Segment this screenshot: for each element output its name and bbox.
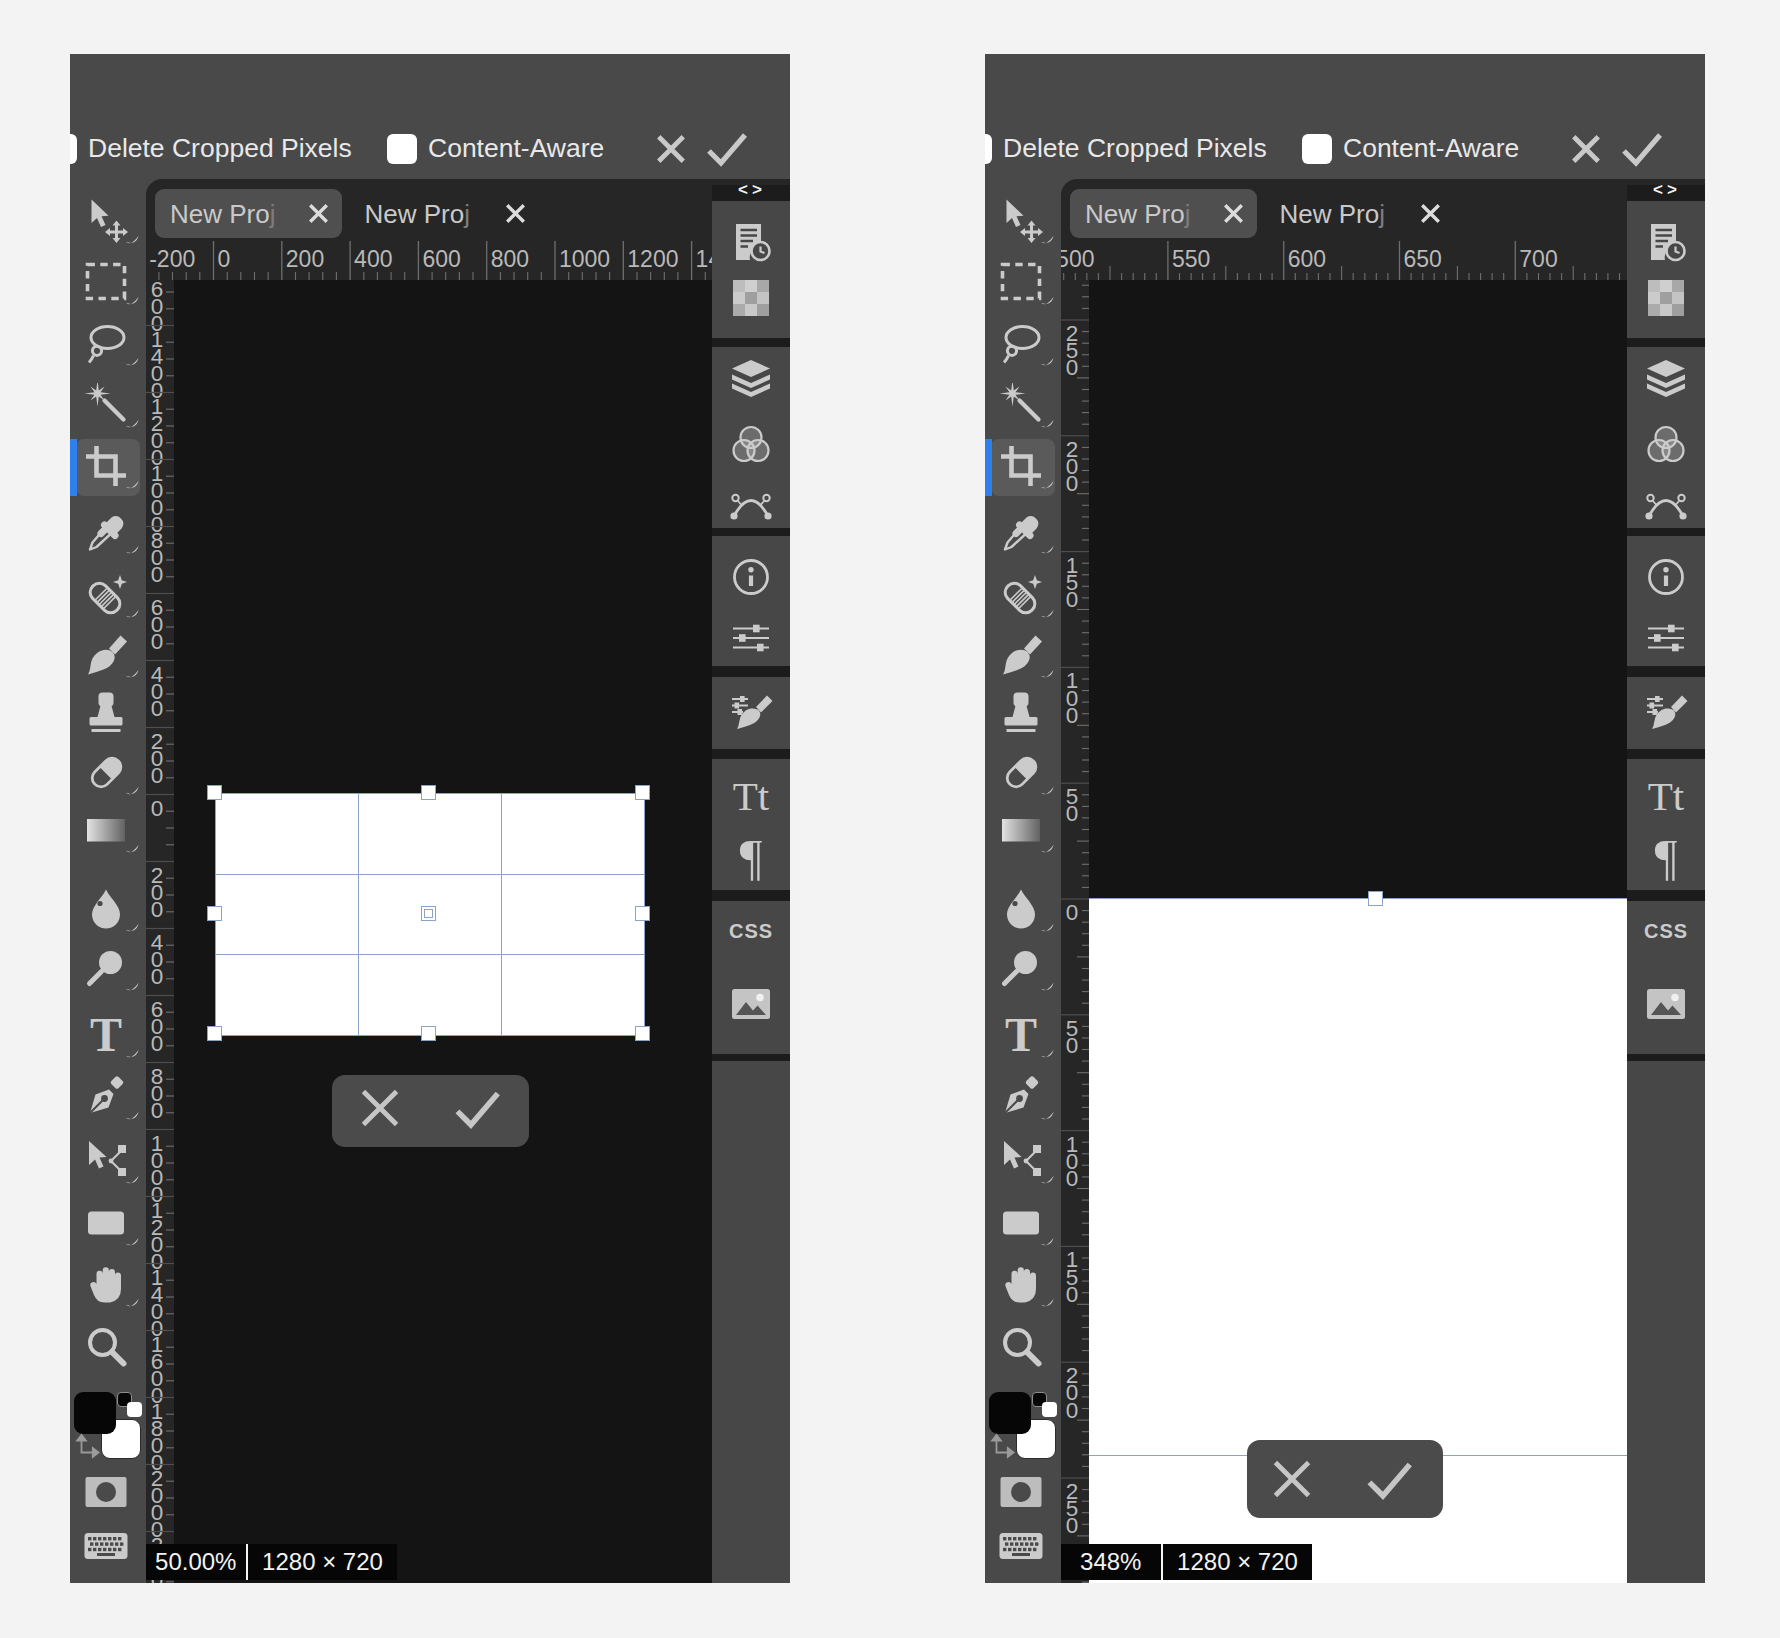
svg-text:1400: 1400: [151, 327, 164, 404]
svg-text:200: 200: [151, 729, 164, 788]
svg-text:400: 400: [151, 662, 164, 721]
svg-text:1200: 1200: [151, 1198, 164, 1275]
svg-text:2000: 2000: [151, 1466, 164, 1543]
svg-text:800: 800: [151, 528, 164, 587]
svg-text:250: 250: [1066, 321, 1079, 380]
svg-text:1400: 1400: [151, 1265, 164, 1342]
svg-text:650: 650: [1404, 246, 1442, 272]
svg-text:0: 0: [218, 246, 231, 272]
svg-text:500: 500: [1061, 246, 1094, 272]
svg-text:1000: 1000: [151, 1131, 164, 1208]
svg-text:400: 400: [354, 246, 392, 272]
svg-text:800: 800: [151, 1064, 164, 1123]
svg-text:700: 700: [1519, 246, 1557, 272]
svg-text:50: 50: [1066, 784, 1079, 826]
svg-text:200: 200: [286, 246, 324, 272]
svg-text:0: 0: [151, 796, 164, 821]
svg-text:600: 600: [1288, 246, 1326, 272]
svg-text:1400: 1400: [696, 246, 712, 272]
svg-text:800: 800: [491, 246, 529, 272]
svg-text:600: 600: [151, 997, 164, 1056]
svg-text:1200: 1200: [627, 246, 678, 272]
svg-text:1600: 1600: [151, 1332, 164, 1409]
svg-text:200: 200: [151, 863, 164, 922]
svg-text:200: 200: [1066, 437, 1079, 496]
svg-text:1200: 1200: [151, 394, 164, 471]
svg-text:600: 600: [422, 246, 460, 272]
svg-text:1000: 1000: [151, 461, 164, 538]
svg-text:0: 0: [1066, 900, 1079, 925]
svg-text:100: 100: [1066, 668, 1079, 727]
svg-text:400: 400: [151, 930, 164, 989]
svg-text:250: 250: [1066, 1479, 1079, 1538]
svg-text:1800: 1800: [151, 1399, 164, 1476]
svg-text:1000: 1000: [559, 246, 610, 272]
svg-text:50: 50: [1066, 1016, 1079, 1058]
svg-text:150: 150: [1066, 553, 1079, 612]
svg-text:100: 100: [1066, 1132, 1079, 1191]
svg-text:600: 600: [151, 595, 164, 654]
svg-text:-200: -200: [149, 246, 195, 272]
svg-text:550: 550: [1172, 246, 1210, 272]
svg-text:150: 150: [1066, 1247, 1079, 1306]
svg-text:200: 200: [1066, 1363, 1079, 1422]
